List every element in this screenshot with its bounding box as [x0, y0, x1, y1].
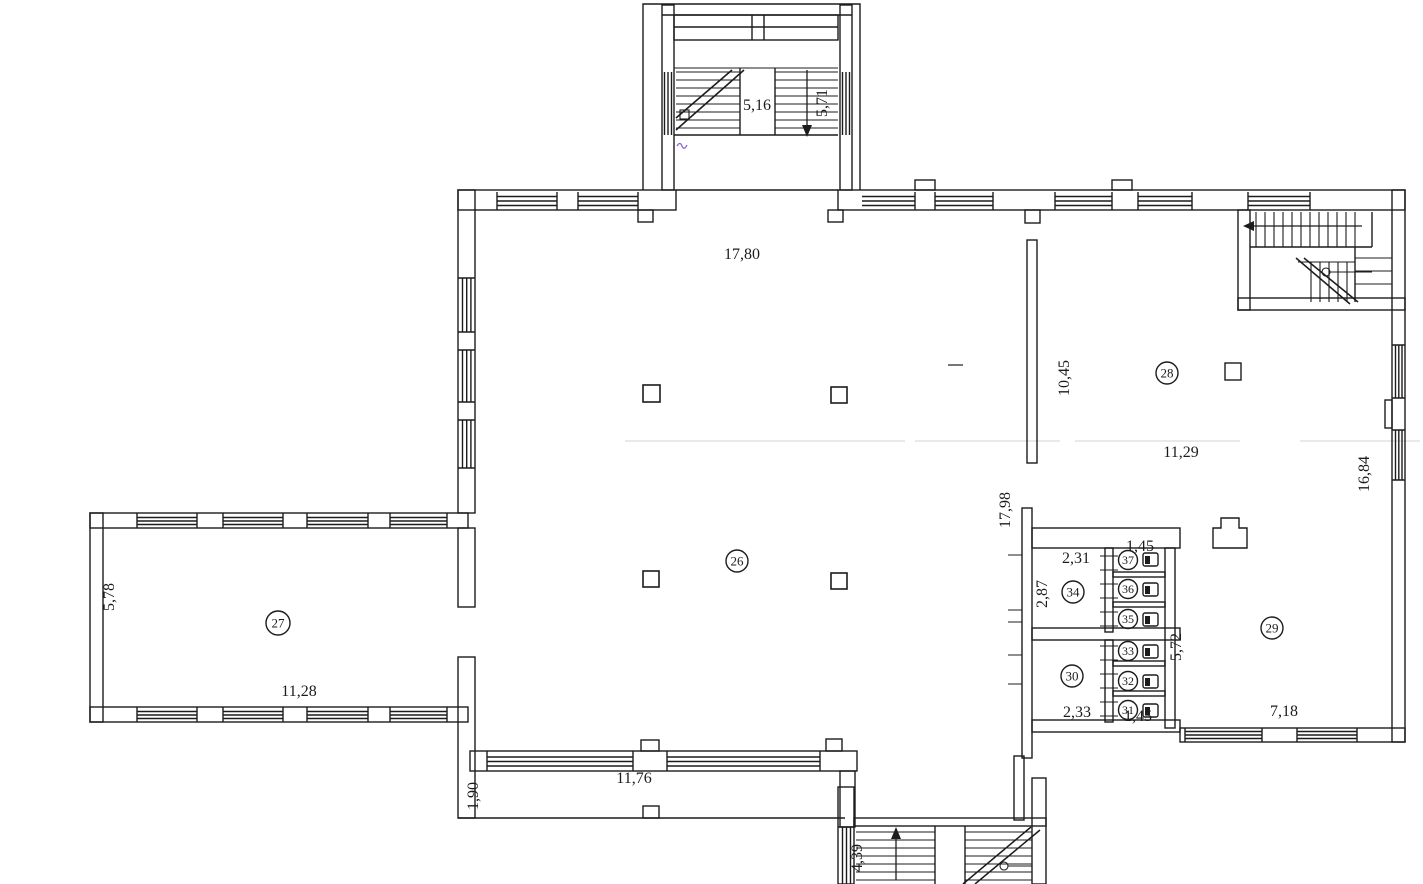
toilet-icon — [1143, 583, 1158, 596]
stall-33: 33 — [1119, 642, 1159, 661]
bottom-stairwell: 4,39 — [838, 778, 1046, 884]
room-33-number: 33 — [1122, 644, 1134, 658]
dim-terrace-width: 11,76 — [616, 770, 651, 787]
pilaster — [641, 740, 659, 751]
dim-partition: 10,45 — [1056, 360, 1073, 396]
window-glazing — [1055, 192, 1112, 210]
north-wall — [458, 180, 1405, 223]
window-glazing — [1297, 728, 1357, 742]
window-glazing — [1248, 192, 1310, 210]
dim-stair-top-width: 5,16 — [743, 97, 771, 114]
room-31-number: 31 — [1122, 703, 1134, 717]
window-glazing — [1392, 430, 1405, 480]
wall-hatch — [1100, 646, 1118, 716]
dim-hall-top-width: 17,80 — [724, 246, 760, 263]
main-hall-room26: 26 17,80 — [643, 246, 847, 589]
room29: 29 7,18 — [1180, 617, 1405, 742]
window-glazing — [1138, 192, 1192, 210]
east-wall: 16,84 — [1356, 190, 1405, 742]
column — [643, 571, 659, 587]
room-36-number: 36 — [1122, 582, 1134, 596]
terrace: 11,76 1,90 — [458, 739, 857, 827]
window-glazing — [667, 751, 820, 771]
column — [831, 387, 847, 403]
partition-room28: 10,45 28 11,29 — [1027, 240, 1241, 463]
partition-wall — [1027, 240, 1037, 463]
room-29-number: 29 — [1266, 621, 1279, 636]
dim-wc-block-length: 5,72 — [1168, 633, 1185, 661]
room-26-number: 26 — [731, 554, 745, 569]
window-glazing — [843, 72, 850, 135]
upper-right-stairwell — [1238, 210, 1405, 310]
stair-break-line — [676, 70, 744, 130]
room-32-number: 32 — [1122, 674, 1134, 688]
dim-wc-top-height: 2,87 — [1034, 580, 1051, 608]
pilaster — [1385, 400, 1392, 428]
pilaster — [826, 739, 842, 751]
window-glazing — [578, 192, 638, 210]
window-glazing — [1185, 728, 1262, 742]
left-arrow-icon — [1243, 221, 1254, 231]
room-35-number: 35 — [1122, 612, 1134, 626]
toilet-icon — [1143, 613, 1158, 626]
scan-artifacts — [625, 365, 1420, 441]
stall-35: 35 — [1119, 610, 1159, 629]
dim-wing-height: 5,78 — [101, 583, 118, 611]
left-wing-room27: 27 5,78 11,28 — [90, 513, 468, 722]
stall-36: 36 — [1119, 580, 1159, 599]
window-glazing — [935, 192, 993, 210]
room-27-number: 27 — [272, 616, 286, 631]
dim-stair-top-height: 5,71 — [814, 89, 831, 117]
pier — [1213, 518, 1247, 548]
floor-plan-drawing: 5,16 5,71 16,84 — [0, 0, 1423, 884]
window-glazing — [307, 707, 368, 722]
stall-32: 32 — [1119, 672, 1159, 691]
entrance-stairwell: 5,16 5,71 — [643, 4, 860, 190]
window-glazing — [458, 278, 475, 332]
dim-wing-width: 11,28 — [281, 683, 316, 700]
window-glazing — [1392, 345, 1405, 398]
window-glazing — [137, 513, 197, 528]
room-30-number: 30 — [1066, 669, 1079, 684]
wc-block: 17,98 34 2,31 2,87 30 2,33 1,45 1,45 5,7… — [997, 492, 1247, 820]
pilaster — [638, 210, 653, 222]
window-glazing — [862, 192, 915, 210]
up-arrow-icon — [891, 827, 901, 839]
pilaster — [1025, 210, 1040, 223]
window-glazing — [223, 707, 283, 722]
pilaster — [643, 806, 659, 818]
west-wall — [458, 190, 475, 818]
toilet-icon — [1143, 645, 1158, 658]
dim-terrace-depth: 1,90 — [465, 782, 482, 810]
stair-break-line — [1296, 258, 1358, 304]
window-glazing — [307, 513, 368, 528]
floor-plan-sheet: 5,16 5,71 16,84 — [0, 0, 1423, 884]
window-glazing — [497, 192, 557, 210]
room-37-number: 37 — [1122, 553, 1134, 567]
column — [831, 573, 847, 589]
duct-ticks — [1008, 555, 1022, 684]
window-glazing — [665, 72, 672, 135]
wall-jog — [1014, 756, 1024, 820]
pilaster — [828, 210, 843, 222]
hall-east-wall — [1022, 508, 1032, 758]
column — [643, 385, 660, 402]
pilaster — [915, 180, 935, 190]
toilet-icon — [1143, 675, 1158, 688]
window-glazing — [390, 707, 447, 722]
dim-room29-width: 7,18 — [1270, 703, 1298, 720]
pen-mark — [677, 144, 687, 149]
wall-hatch — [1100, 556, 1118, 626]
window-glazing — [458, 420, 475, 468]
column — [1225, 363, 1241, 380]
window-glazing — [137, 707, 197, 722]
window-glazing — [223, 513, 283, 528]
window-glazing — [487, 751, 633, 771]
stair-treads — [1256, 212, 1355, 247]
dim-hall-right-wall: 17,98 — [997, 492, 1014, 528]
pilaster — [1112, 180, 1132, 190]
dim-room28-width: 11,29 — [1163, 444, 1198, 461]
dim-right-wall: 16,84 — [1356, 456, 1373, 492]
dim-wc-top-width: 2,31 — [1062, 550, 1090, 567]
dim-stair-bottom-height: 4,39 — [849, 844, 866, 872]
room-34-number: 34 — [1067, 585, 1081, 600]
window-glazing — [458, 350, 475, 402]
stair-pole-marker — [1000, 862, 1008, 870]
dim-wc-bottom-width: 2,33 — [1063, 704, 1091, 721]
stair-treads — [965, 832, 1032, 880]
stair-treads — [676, 72, 740, 128]
window-glazing — [390, 513, 447, 528]
room-28-number: 28 — [1161, 366, 1174, 381]
